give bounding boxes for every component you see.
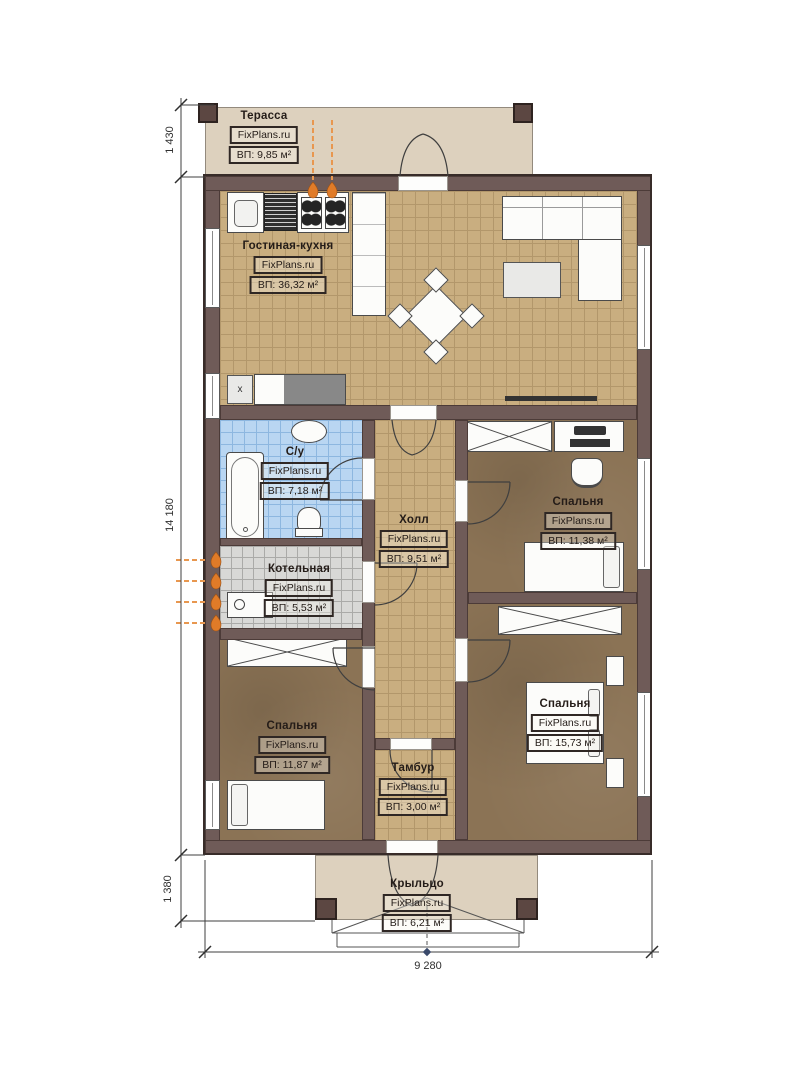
dimension-house-height: 14 180 bbox=[164, 498, 176, 532]
room-label-terrace: Терасса FixPlans.ru ВП: 9,85 м² bbox=[229, 110, 299, 164]
room-area: ВП: 9,85 м² bbox=[229, 146, 299, 164]
bathtub-drain bbox=[243, 527, 248, 532]
desk-keyboard bbox=[570, 439, 610, 447]
branding-badge: FixPlans.ru bbox=[544, 512, 613, 530]
stove-burners-right bbox=[325, 197, 346, 229]
door-opening-bathroom bbox=[362, 458, 375, 500]
branding-badge: FixPlans.ru bbox=[265, 579, 334, 597]
fridge bbox=[264, 193, 297, 231]
branding-badge: FixPlans.ru bbox=[258, 736, 327, 754]
room-title: Холл bbox=[379, 514, 449, 526]
dimension-house-width: 9 280 bbox=[414, 960, 442, 972]
kitchen-sink-cabinet bbox=[227, 192, 264, 233]
wardrobe-x-icon bbox=[228, 638, 346, 666]
room-label-bedroom-bottom-left: Спальня FixPlans.ru ВП: 11,87 м² bbox=[254, 720, 330, 774]
room-label-boiler: Котельная FixPlans.ru ВП: 5,53 м² bbox=[264, 563, 334, 617]
dimension-center-marker bbox=[423, 948, 431, 956]
window-bedroom1-right bbox=[637, 458, 652, 570]
wall-bedrooms-right bbox=[468, 592, 637, 604]
sofa-horizontal bbox=[502, 196, 622, 240]
room-title: Котельная bbox=[264, 563, 334, 575]
nightstand-top bbox=[606, 656, 624, 686]
room-label-bedroom-top-right: Спальня FixPlans.ru ВП: 11,38 м² bbox=[540, 496, 616, 550]
wardrobe-bedroom1 bbox=[466, 421, 552, 452]
door-opening-bedroom2 bbox=[455, 638, 468, 682]
coffee-table bbox=[503, 262, 561, 298]
door-opening-boiler bbox=[362, 561, 375, 603]
washing-machine-mark: x bbox=[238, 384, 243, 395]
window-kitchen-left bbox=[205, 373, 220, 419]
terrace-post-right bbox=[513, 103, 533, 123]
room-label-vestibule: Тамбур FixPlans.ru ВП: 3,00 м² bbox=[378, 762, 448, 816]
window-living-left bbox=[205, 228, 220, 308]
room-area: ВП: 15,73 м² bbox=[527, 734, 603, 752]
bed-bedroom3 bbox=[227, 780, 325, 830]
wardrobe-bedroom2 bbox=[498, 606, 622, 635]
porch-post-left bbox=[315, 898, 337, 920]
room-title: Спальня bbox=[540, 496, 616, 508]
washing-machine: x bbox=[227, 375, 253, 404]
room-area: ВП: 36,32 м² bbox=[250, 276, 326, 294]
desk-monitor bbox=[574, 426, 606, 435]
window-bedroom2-right bbox=[637, 692, 652, 797]
bed-pillow bbox=[231, 784, 248, 826]
branding-badge: FixPlans.ru bbox=[531, 714, 600, 732]
boiler-dial bbox=[234, 599, 245, 610]
dimension-porch-depth: 1 380 bbox=[162, 875, 174, 903]
window-bedroom-left bbox=[205, 780, 220, 830]
terrace-post-left bbox=[198, 103, 218, 123]
room-area: ВП: 6,21 м² bbox=[382, 914, 452, 932]
nightstand-bottom bbox=[606, 758, 624, 788]
room-label-living-kitchen: Гостиная-кухня FixPlans.ru ВП: 36,32 м² bbox=[243, 240, 334, 294]
room-title: Спальня bbox=[527, 698, 603, 710]
room-area: ВП: 3,00 м² bbox=[378, 798, 448, 816]
door-opening-bedroom-left bbox=[362, 646, 375, 688]
dimension-terrace-depth: 1 430 bbox=[164, 126, 176, 154]
kitchen-lower-counter bbox=[254, 374, 346, 405]
bath-sink bbox=[291, 420, 327, 443]
floor-plan-canvas: x bbox=[0, 0, 792, 1080]
room-area: ВП: 9,51 м² bbox=[379, 550, 449, 568]
room-label-bedroom-bottom-right: Спальня FixPlans.ru ВП: 15,73 м² bbox=[527, 698, 603, 752]
room-title: Гостиная-кухня bbox=[243, 240, 334, 252]
wardrobe-x-icon bbox=[467, 422, 551, 451]
wall-boiler-bedroom bbox=[220, 628, 362, 640]
room-title: Спальня bbox=[254, 720, 330, 732]
wardrobe-bedroom3 bbox=[227, 637, 347, 667]
stove bbox=[297, 192, 349, 233]
room-area: ВП: 7,18 м² bbox=[260, 482, 330, 500]
room-title: Терасса bbox=[229, 110, 299, 122]
tv bbox=[505, 396, 597, 401]
toilet-tank bbox=[295, 528, 323, 537]
branding-badge: FixPlans.ru bbox=[261, 462, 330, 480]
branding-badge: FixPlans.ru bbox=[254, 256, 323, 274]
room-label-hall: Холл FixPlans.ru ВП: 9,51 м² bbox=[379, 514, 449, 568]
stove-burners-left bbox=[301, 197, 322, 229]
desk-chair-bedroom1 bbox=[571, 458, 603, 488]
sofa-corner bbox=[578, 239, 622, 301]
room-label-porch: Крыльцо FixPlans.ru ВП: 6,21 м² bbox=[382, 878, 452, 932]
door-opening-terrace bbox=[398, 176, 448, 191]
room-area: ВП: 11,38 м² bbox=[540, 532, 616, 550]
room-title: Тамбур bbox=[378, 762, 448, 774]
hall-floor bbox=[375, 420, 455, 738]
window-living-right bbox=[637, 245, 652, 350]
branding-badge: FixPlans.ru bbox=[379, 778, 448, 796]
room-area: ВП: 11,87 м² bbox=[254, 756, 330, 774]
branding-badge: FixPlans.ru bbox=[230, 126, 299, 144]
branding-badge: FixPlans.ru bbox=[383, 894, 452, 912]
door-opening-bedroom1 bbox=[455, 480, 468, 522]
room-title: Крыльцо bbox=[382, 878, 452, 890]
door-opening-entrance bbox=[386, 840, 438, 855]
room-area: ВП: 5,53 м² bbox=[264, 599, 334, 617]
kitchen-island-counter bbox=[352, 192, 386, 316]
branding-badge: FixPlans.ru bbox=[380, 530, 449, 548]
bathtub bbox=[226, 452, 264, 542]
bathtub-inner bbox=[231, 457, 259, 537]
wardrobe-x-icon bbox=[499, 607, 621, 634]
room-title: С/у bbox=[260, 446, 330, 458]
desk-bedroom1 bbox=[554, 421, 624, 452]
room-label-bathroom: С/у FixPlans.ru ВП: 7,18 м² bbox=[260, 446, 330, 500]
porch-post-right bbox=[516, 898, 538, 920]
door-opening-living-hall bbox=[390, 405, 437, 420]
bed-pillow bbox=[603, 546, 620, 588]
wall-bath-boiler bbox=[220, 538, 362, 546]
kitchen-sink-basin bbox=[234, 200, 258, 227]
door-opening-vestibule bbox=[390, 738, 432, 750]
